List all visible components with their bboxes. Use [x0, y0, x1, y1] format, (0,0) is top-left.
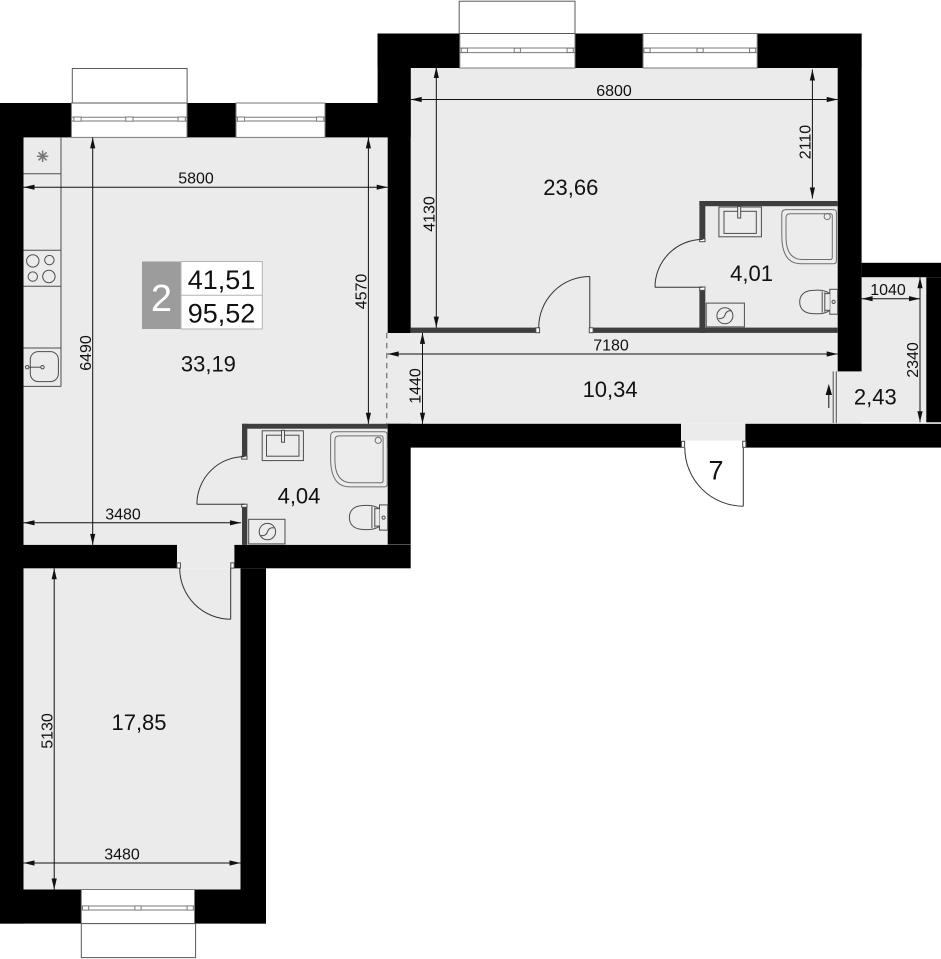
- svg-text:23,66: 23,66: [543, 175, 598, 200]
- svg-text:7: 7: [708, 456, 723, 486]
- svg-text:41,51: 41,51: [188, 265, 256, 295]
- svg-text:1440: 1440: [408, 368, 425, 404]
- svg-text:4,04: 4,04: [278, 484, 321, 509]
- svg-text:5800: 5800: [178, 171, 214, 188]
- svg-text:6800: 6800: [596, 83, 632, 100]
- svg-text:2: 2: [151, 278, 172, 320]
- svg-text:10,34: 10,34: [583, 377, 638, 402]
- svg-text:4,01: 4,01: [730, 261, 773, 286]
- svg-text:6490: 6490: [78, 335, 95, 371]
- svg-text:4570: 4570: [354, 274, 371, 310]
- svg-text:2110: 2110: [798, 125, 815, 160]
- svg-text:95,52: 95,52: [188, 299, 256, 329]
- svg-text:7180: 7180: [593, 338, 629, 355]
- svg-text:17,85: 17,85: [111, 710, 166, 735]
- svg-text:33,19: 33,19: [181, 352, 236, 377]
- svg-text:3480: 3480: [105, 506, 141, 523]
- svg-text:2,43: 2,43: [854, 385, 897, 410]
- svg-text:3480: 3480: [104, 847, 140, 864]
- svg-text:1040: 1040: [870, 282, 906, 299]
- svg-text:2340: 2340: [905, 342, 922, 378]
- svg-text:5130: 5130: [39, 713, 56, 749]
- svg-text:4130: 4130: [422, 196, 439, 232]
